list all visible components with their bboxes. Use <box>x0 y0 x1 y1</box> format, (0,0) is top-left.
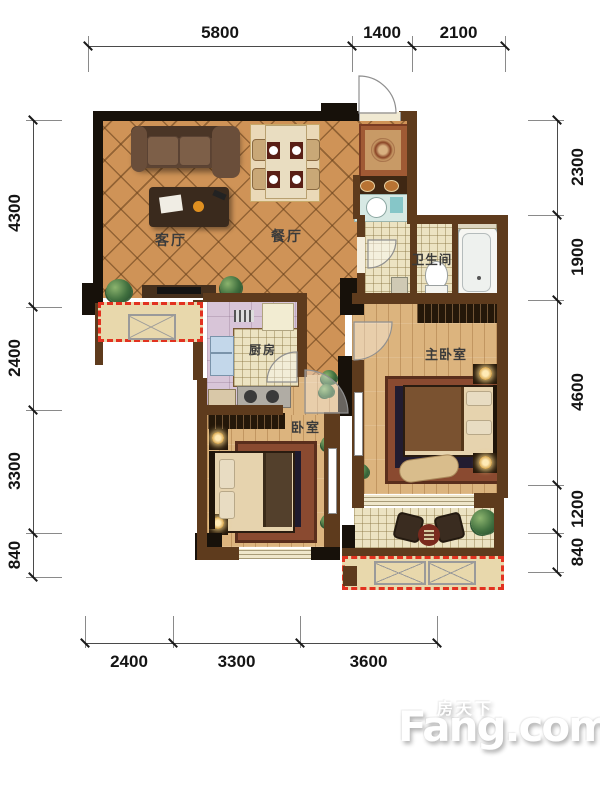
master-window-left <box>354 392 363 456</box>
stove-burner <box>266 390 279 403</box>
entry-rug-medallion <box>371 138 395 162</box>
wall-kitchen-top <box>203 293 307 302</box>
dim-bottom-3600: 3600 <box>300 652 437 672</box>
dim-line-bottom <box>85 643 438 644</box>
room-label-dining: 餐厅 <box>259 226 315 246</box>
coffee-table-paper <box>159 195 183 214</box>
dim-left-4300: 4300 <box>6 198 24 228</box>
master-lamp <box>479 456 492 469</box>
master-bed-blanket <box>405 387 464 451</box>
wall-top <box>93 111 359 121</box>
dim-ext <box>505 36 506 72</box>
bay-br-corner-block <box>343 566 357 586</box>
dim-bottom-2400: 2400 <box>85 652 173 672</box>
balcony-door-sill <box>364 495 474 506</box>
bedroom-window-sill <box>239 549 311 559</box>
dim-top-5800: 5800 <box>88 23 352 43</box>
master-lamp <box>479 367 492 380</box>
bedroom-pillow <box>219 459 235 489</box>
entry-threshold <box>359 112 401 121</box>
wall-balcony-bottom <box>342 548 504 556</box>
master-pillow <box>466 391 492 406</box>
wall-bedroom-bottom <box>197 547 239 560</box>
room-label-master-bedroom: 主卧室 <box>417 344 475 363</box>
bay-br-xbox-1 <box>374 561 426 585</box>
plant <box>321 370 337 385</box>
dim-right-4600: 4600 <box>569 376 587 408</box>
fridge <box>210 336 234 376</box>
dim-right-840: 840 <box>569 536 587 568</box>
tv <box>157 287 201 294</box>
wall-master-top <box>352 293 498 304</box>
plant <box>106 279 132 303</box>
wall-vanity-left <box>353 175 360 219</box>
bedroom-wardrobe <box>208 413 285 429</box>
stove-burner <box>244 390 257 403</box>
plate <box>292 175 301 184</box>
floor-plan: 客厅 餐厅 厨房 卫生间 主卧室 卧室 5800 1400 2100 4300 … <box>0 0 600 800</box>
room-label-bedroom: 卧室 <box>283 417 329 436</box>
room-label-living: 客厅 <box>143 230 199 250</box>
plant <box>319 384 334 398</box>
coffee-table-bowl <box>193 201 204 212</box>
dim-bottom-3300: 3300 <box>173 652 300 672</box>
plate <box>269 175 278 184</box>
bathtub-inner <box>462 233 491 292</box>
wall-right <box>497 215 508 498</box>
sofa-chaise-right <box>212 126 240 178</box>
dim-top-2100: 2100 <box>412 23 505 43</box>
sofa-cushion <box>147 136 179 166</box>
wall-top-pier <box>321 103 357 112</box>
dim-right-1900: 1900 <box>569 241 587 273</box>
bedroom-blanket <box>263 453 292 527</box>
dim-right-1200: 1200 <box>569 493 587 525</box>
vanity-bowl <box>360 180 375 192</box>
dish-rack <box>234 310 254 322</box>
balcony-table-board <box>424 530 434 540</box>
bedroom-lamp <box>212 432 224 444</box>
wall-left <box>93 121 103 283</box>
washbasin <box>366 197 387 218</box>
wall-entry-right <box>407 111 417 223</box>
bathtub-drain <box>477 276 481 280</box>
dim-left-2400: 2400 <box>6 343 24 373</box>
dim-right-2300: 2300 <box>569 151 587 183</box>
kitchen-sink <box>262 303 294 331</box>
plate <box>292 146 301 155</box>
wall-bedroom-top <box>197 405 283 415</box>
dim-line-right <box>557 120 558 572</box>
fang-logo-en: Fang.com <box>398 702 600 751</box>
wall-bedroom-corner-br <box>311 547 340 560</box>
dim-top-1400: 1400 <box>352 23 412 43</box>
bay-left-xbox <box>128 314 176 340</box>
plate <box>269 146 278 155</box>
entry-door-arc <box>359 76 396 113</box>
vanity-bowl <box>384 180 399 192</box>
bedroom-window-right <box>328 448 337 514</box>
wall-kitchen-right <box>297 302 307 377</box>
dim-line-top <box>88 46 505 47</box>
fridge-divider <box>210 352 232 354</box>
room-label-bathroom: 卫生间 <box>403 249 461 268</box>
master-wardrobe <box>417 304 498 323</box>
wall-balcony-sill-right <box>474 493 497 508</box>
dim-line-left <box>33 120 34 577</box>
bedroom-headboard <box>209 451 215 529</box>
wall-bedroom-left <box>197 378 207 550</box>
dim-left-3300: 3300 <box>6 456 24 486</box>
bay-br-xbox-2 <box>428 561 476 585</box>
master-pillow <box>466 420 492 435</box>
wall-balcony-sill-left <box>352 493 364 508</box>
room-label-kitchen: 厨房 <box>240 341 286 358</box>
shower-drain <box>391 277 408 294</box>
sofa-cushion <box>179 136 211 166</box>
bedroom-pillow <box>219 491 235 519</box>
dim-left-840: 840 <box>6 540 24 570</box>
wall-hall-pier-mid <box>338 356 352 416</box>
bathroom-door-gap <box>357 237 365 273</box>
washbasin-glass <box>390 197 403 213</box>
sofa-arm-left <box>131 126 147 172</box>
